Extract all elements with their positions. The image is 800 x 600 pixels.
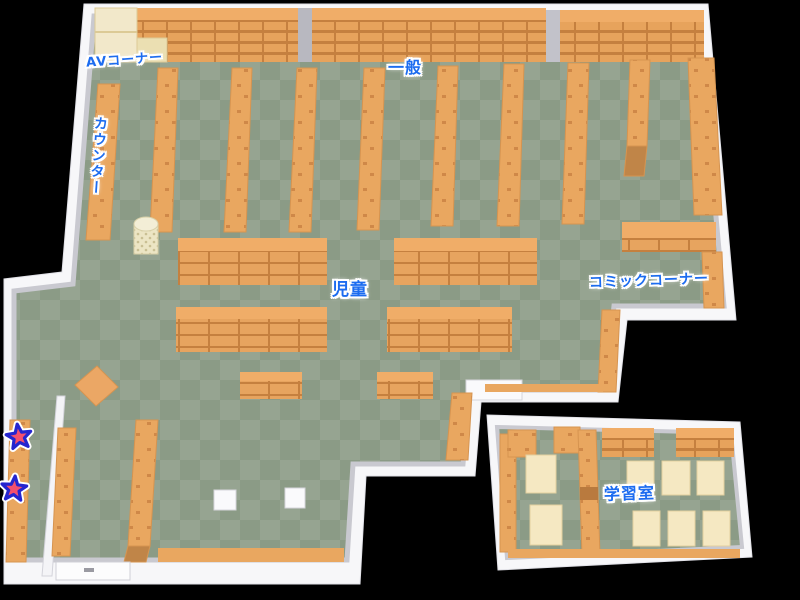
entrance-door xyxy=(56,562,130,580)
study-table xyxy=(526,455,556,493)
library-map: AVコーナー 一般 カウンター 児童 コミックコーナー 学習室 xyxy=(0,0,800,600)
study-table xyxy=(703,511,730,546)
label-children: 児童 xyxy=(332,282,368,300)
study-table xyxy=(668,511,695,546)
white-seat xyxy=(214,490,236,510)
wall-bookshelf-row xyxy=(134,8,704,62)
white-seat xyxy=(285,488,305,508)
label-study-room: 学習室 xyxy=(604,485,656,504)
study-table xyxy=(662,461,690,495)
study-table xyxy=(530,505,562,545)
floor-plan-graphic xyxy=(0,0,800,600)
label-general: 一般 xyxy=(388,60,422,77)
book-spinner-rack xyxy=(134,217,158,254)
study-table xyxy=(697,461,724,495)
study-table xyxy=(633,511,660,546)
